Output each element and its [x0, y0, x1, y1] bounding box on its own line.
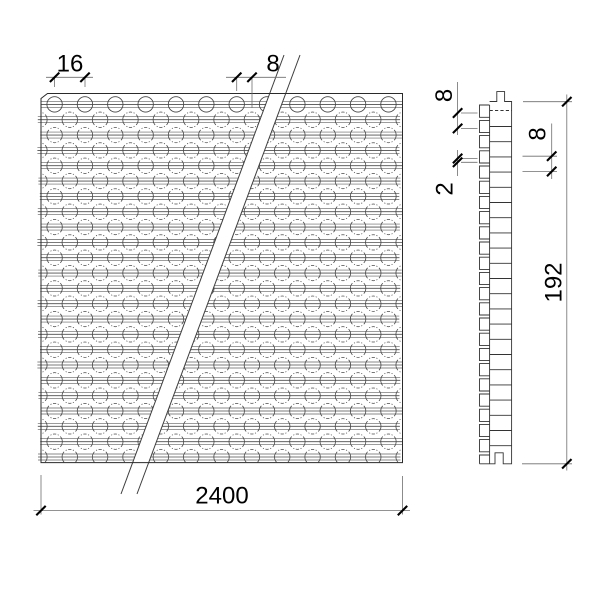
- svg-text:2: 2: [431, 182, 458, 195]
- svg-text:192: 192: [541, 262, 568, 302]
- svg-text:8: 8: [266, 51, 279, 78]
- svg-text:8: 8: [525, 127, 552, 140]
- svg-text:8: 8: [431, 89, 458, 102]
- svg-text:16: 16: [57, 51, 84, 78]
- svg-text:2400: 2400: [195, 483, 248, 510]
